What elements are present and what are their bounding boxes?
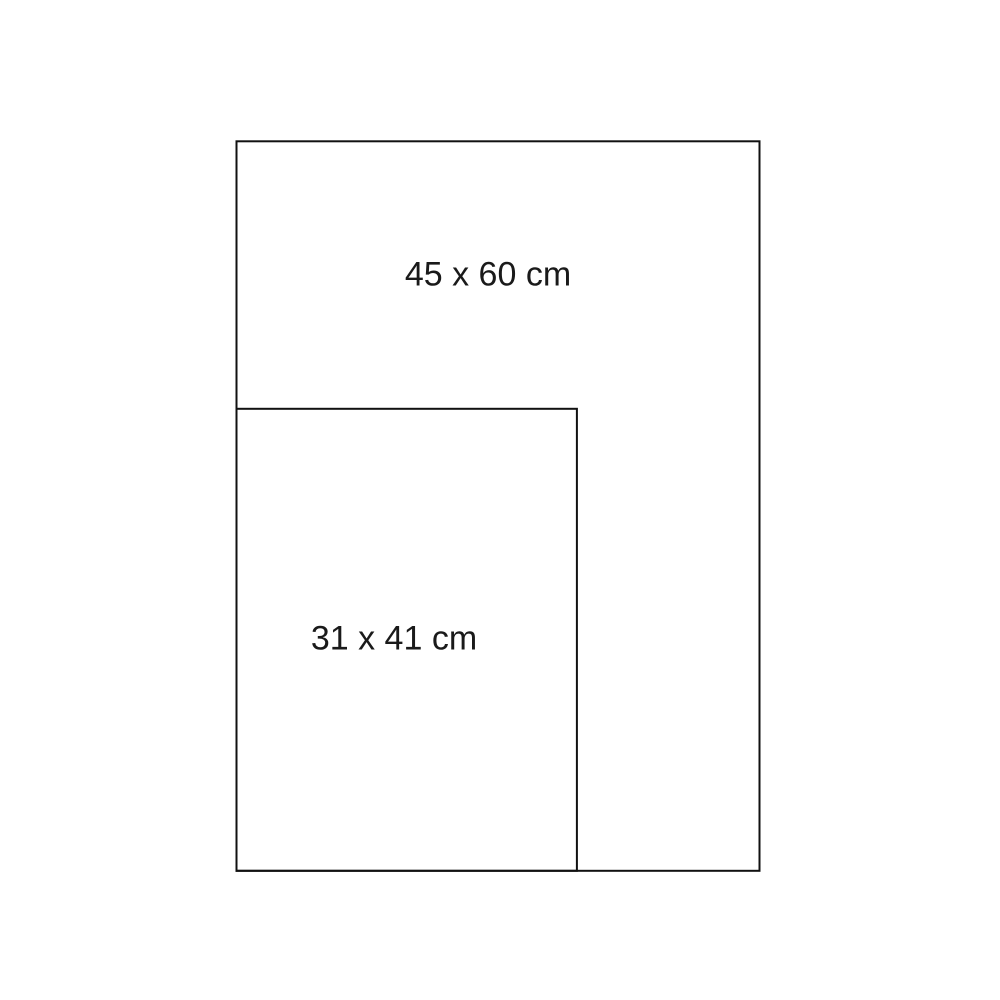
svg-text:31 x 41 cm: 31 x 41 cm [311,620,477,658]
svg-text:45 x 60 cm: 45 x 60 cm [405,256,571,294]
